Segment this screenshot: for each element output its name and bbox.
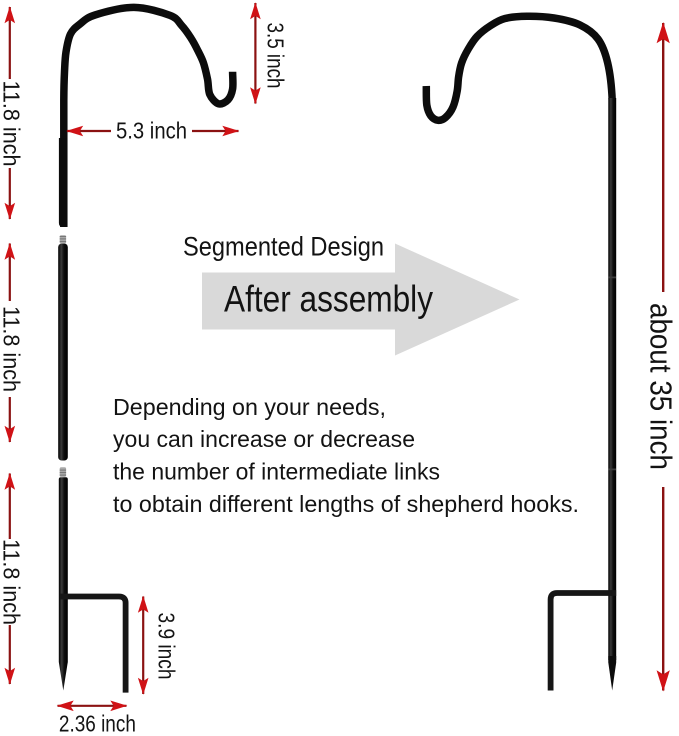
svg-text:11.8 inch: 11.8 inch — [0, 539, 24, 625]
svg-text:11.8 inch: 11.8 inch — [0, 81, 24, 167]
svg-text:3.9 inch: 3.9 inch — [153, 613, 179, 680]
svg-text:to obtain different lengths of: to obtain different lengths of shepherd … — [113, 491, 579, 517]
svg-text:3.5 inch: 3.5 inch — [263, 23, 289, 89]
svg-text:Segmented Design: Segmented Design — [183, 232, 384, 262]
svg-text:the number of intermediate lin: the number of intermediate links — [113, 459, 440, 485]
svg-text:about 35 inch: about 35 inch — [644, 303, 679, 470]
svg-text:you can increase or decrease: you can increase or decrease — [113, 426, 415, 452]
svg-text:5.3 inch: 5.3 inch — [116, 118, 187, 144]
svg-text:2.36 inch: 2.36 inch — [59, 711, 136, 736]
svg-text:11.8 inch: 11.8 inch — [0, 306, 24, 392]
svg-text:After assembly: After assembly — [224, 279, 433, 320]
svg-text:Depending on your needs,: Depending on your needs, — [113, 394, 386, 420]
